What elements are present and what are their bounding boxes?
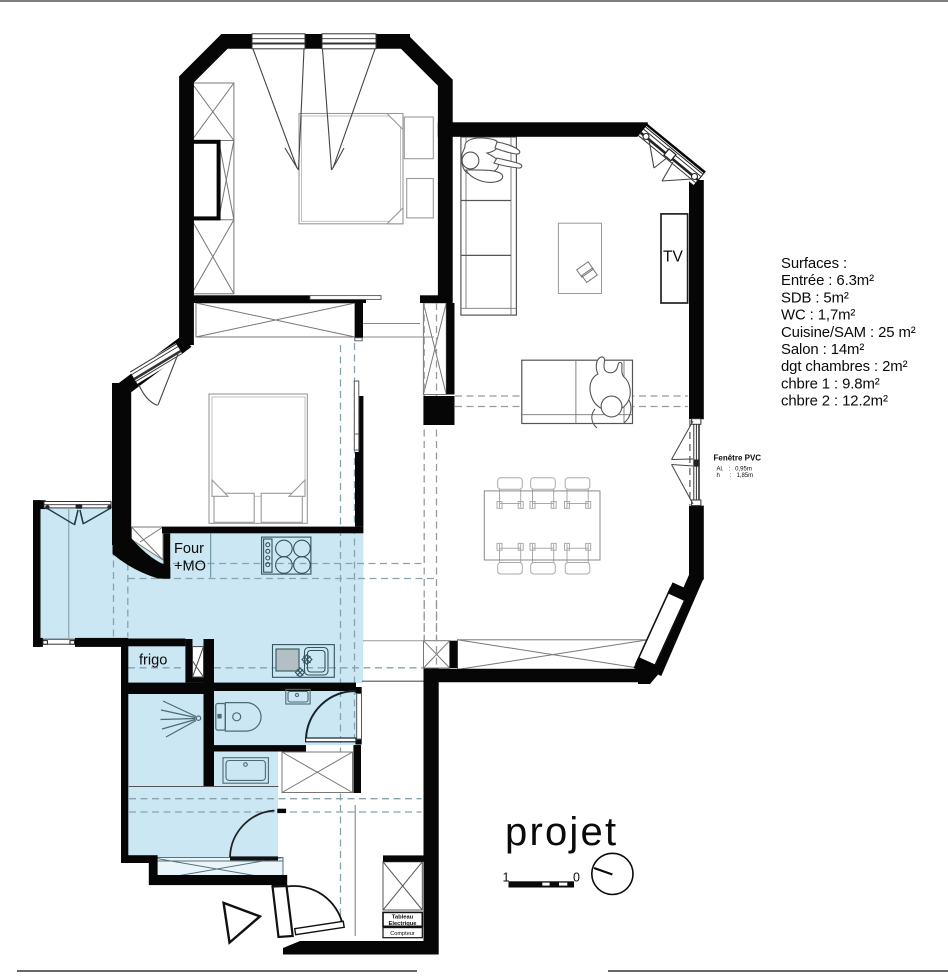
svg-text:Tableau: Tableau <box>392 915 414 921</box>
svg-text:Four: Four <box>174 541 204 557</box>
svg-text:SDB : 5m²: SDB : 5m² <box>781 290 849 306</box>
svg-text:Al. : 0,95m: Al. : 0,95m <box>717 467 752 473</box>
svg-text:chbre 1 : 9.8m²: chbre 1 : 9.8m² <box>781 376 880 392</box>
svg-text:1: 1 <box>503 871 510 885</box>
svg-text:+MO: +MO <box>174 558 206 574</box>
svg-text:dgt chambres : 2m²: dgt chambres : 2m² <box>781 359 908 375</box>
svg-text:Salon : 14m²: Salon : 14m² <box>781 342 864 358</box>
svg-text:Entrée : 6.3m²: Entrée : 6.3m² <box>781 273 874 289</box>
svg-text:Electrique: Electrique <box>388 921 417 927</box>
svg-text:chbre 2 : 12.2m²: chbre 2 : 12.2m² <box>781 394 888 410</box>
svg-text:projet: projet <box>505 810 618 854</box>
svg-text:0: 0 <box>573 871 580 885</box>
svg-text:Compteur: Compteur <box>390 931 415 937</box>
svg-text:WC : 1,7m²: WC : 1,7m² <box>781 308 855 324</box>
svg-text:Fenêtre PVC: Fenêtre PVC <box>714 454 762 463</box>
svg-text:Surfaces :: Surfaces : <box>781 256 847 272</box>
svg-text:frigo: frigo <box>139 653 167 669</box>
svg-text:h : 1,85m: h : 1,85m <box>717 473 754 479</box>
svg-text:TV: TV <box>663 249 683 266</box>
svg-text:Cuisine/SAM : 25 m²: Cuisine/SAM : 25 m² <box>781 325 916 341</box>
